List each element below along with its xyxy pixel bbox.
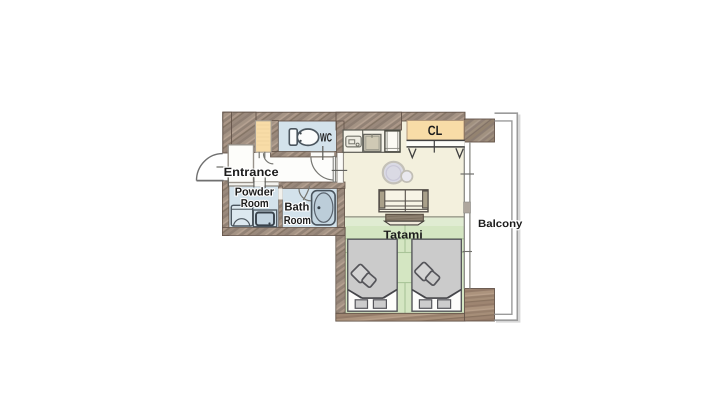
- svg-text:Bath: Bath: [284, 201, 309, 213]
- svg-text:Room: Room: [241, 198, 269, 210]
- svg-text:Balcony: Balcony: [478, 218, 523, 230]
- svg-text:Tatami: Tatami: [383, 229, 422, 241]
- svg-text:Powder: Powder: [235, 187, 275, 199]
- svg-text:Entrance: Entrance: [224, 165, 279, 179]
- svg-text:WC: WC: [320, 131, 332, 145]
- svg-text:CL: CL: [428, 123, 443, 138]
- svg-text:Room: Room: [284, 215, 311, 227]
